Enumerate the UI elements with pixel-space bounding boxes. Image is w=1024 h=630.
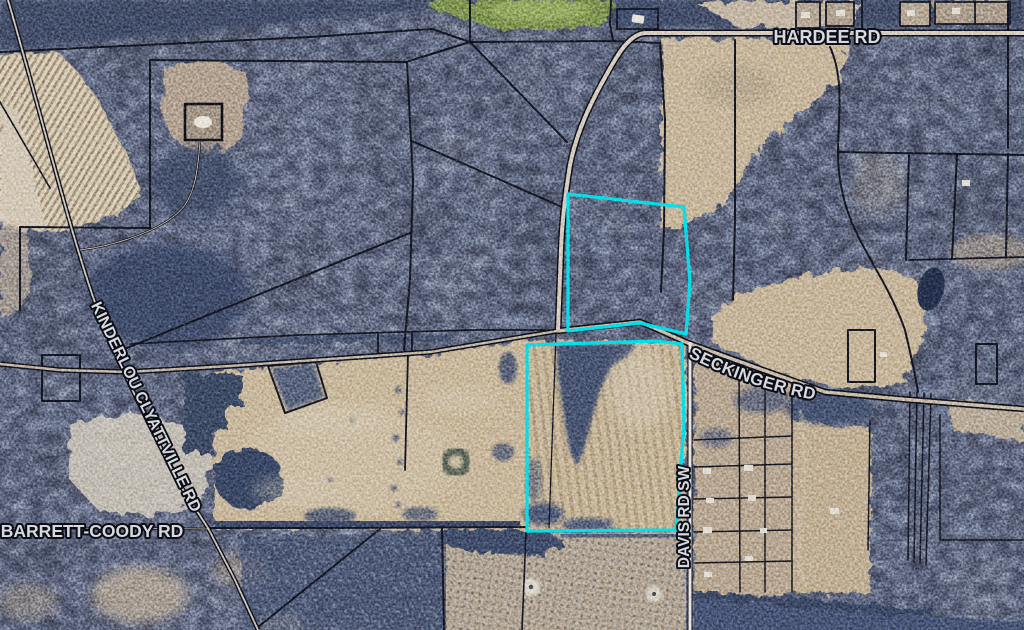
svg-text:DAVIS RD SW: DAVIS RD SW: [676, 466, 693, 569]
svg-text:HARDEE RD: HARDEE RD: [773, 27, 880, 47]
svg-text:BARRETT-COODY RD: BARRETT-COODY RD: [1, 521, 183, 541]
